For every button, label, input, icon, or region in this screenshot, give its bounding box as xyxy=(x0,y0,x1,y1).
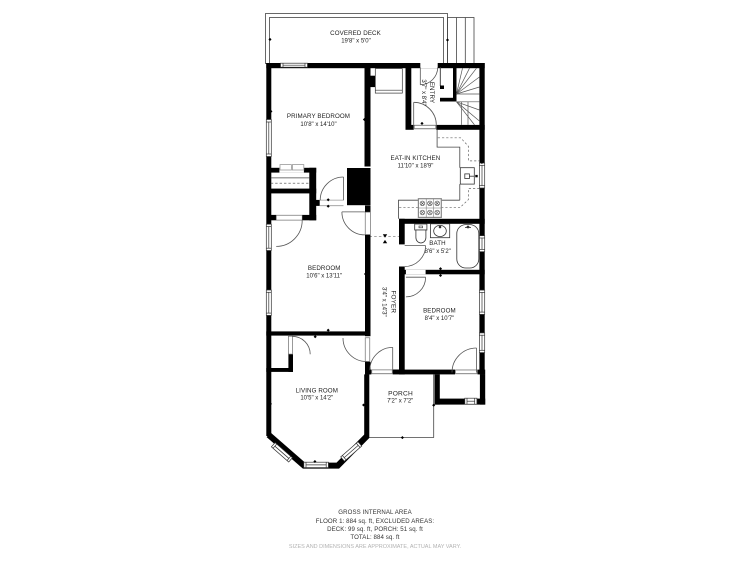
svg-text:8'4" x 10'7": 8'4" x 10'7" xyxy=(425,316,455,322)
svg-text:7'2" x 7'2": 7'2" x 7'2" xyxy=(387,399,413,405)
svg-text:8'6" x 5'2": 8'6" x 5'2" xyxy=(425,249,451,255)
svg-text:LIVING ROOM: LIVING ROOM xyxy=(296,387,338,394)
svg-text:3'4" x 14'3": 3'4" x 14'3" xyxy=(381,287,387,317)
svg-text:FOYER: FOYER xyxy=(389,291,396,314)
svg-text:COVERED DECK: COVERED DECK xyxy=(330,30,381,37)
svg-text:BATH: BATH xyxy=(429,240,445,247)
svg-text:EAT-IN KITCHEN: EAT-IN KITCHEN xyxy=(391,155,441,162)
svg-text:10'5" x 14'2": 10'5" x 14'2" xyxy=(300,396,333,402)
svg-text:11'10" x 18'9": 11'10" x 18'9" xyxy=(398,163,434,169)
svg-text:PORCH: PORCH xyxy=(388,391,413,398)
svg-text:19'8" x 5'0": 19'8" x 5'0" xyxy=(341,39,371,45)
svg-text:PRIMARY BEDROOM: PRIMARY BEDROOM xyxy=(287,113,350,120)
svg-text:BEDROOM: BEDROOM xyxy=(423,307,456,314)
svg-text:10'6" x 13'11": 10'6" x 13'11" xyxy=(306,274,342,280)
svg-text:3'7" x 8'4": 3'7" x 8'4" xyxy=(420,79,426,105)
svg-text:BEDROOM: BEDROOM xyxy=(308,265,341,272)
svg-text:ENTRY: ENTRY xyxy=(428,82,435,103)
svg-text:10'8" x 14'10": 10'8" x 14'10" xyxy=(300,122,336,128)
